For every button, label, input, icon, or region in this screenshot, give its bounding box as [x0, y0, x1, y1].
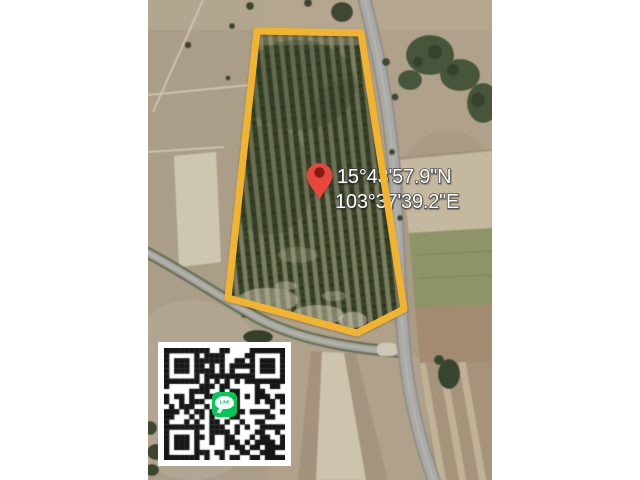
line-logo-label: LINE	[220, 400, 230, 404]
road-junction	[377, 343, 397, 356]
line-app-icon: LINE	[212, 392, 237, 417]
satellite-photo: 15°43'57.9"N 103°37'39.2"E LINE	[148, 0, 492, 480]
longitude-label: 103°37'39.2"E	[335, 191, 459, 213]
tree-top-center	[331, 2, 353, 22]
line-bubble-tail-icon	[217, 407, 223, 412]
tree-right-of-road-small	[434, 355, 444, 365]
qr-code: LINE	[158, 342, 291, 466]
latitude-label: 15°43'57.9"N	[337, 166, 451, 188]
line-speech-bubble-icon: LINE	[215, 396, 234, 409]
